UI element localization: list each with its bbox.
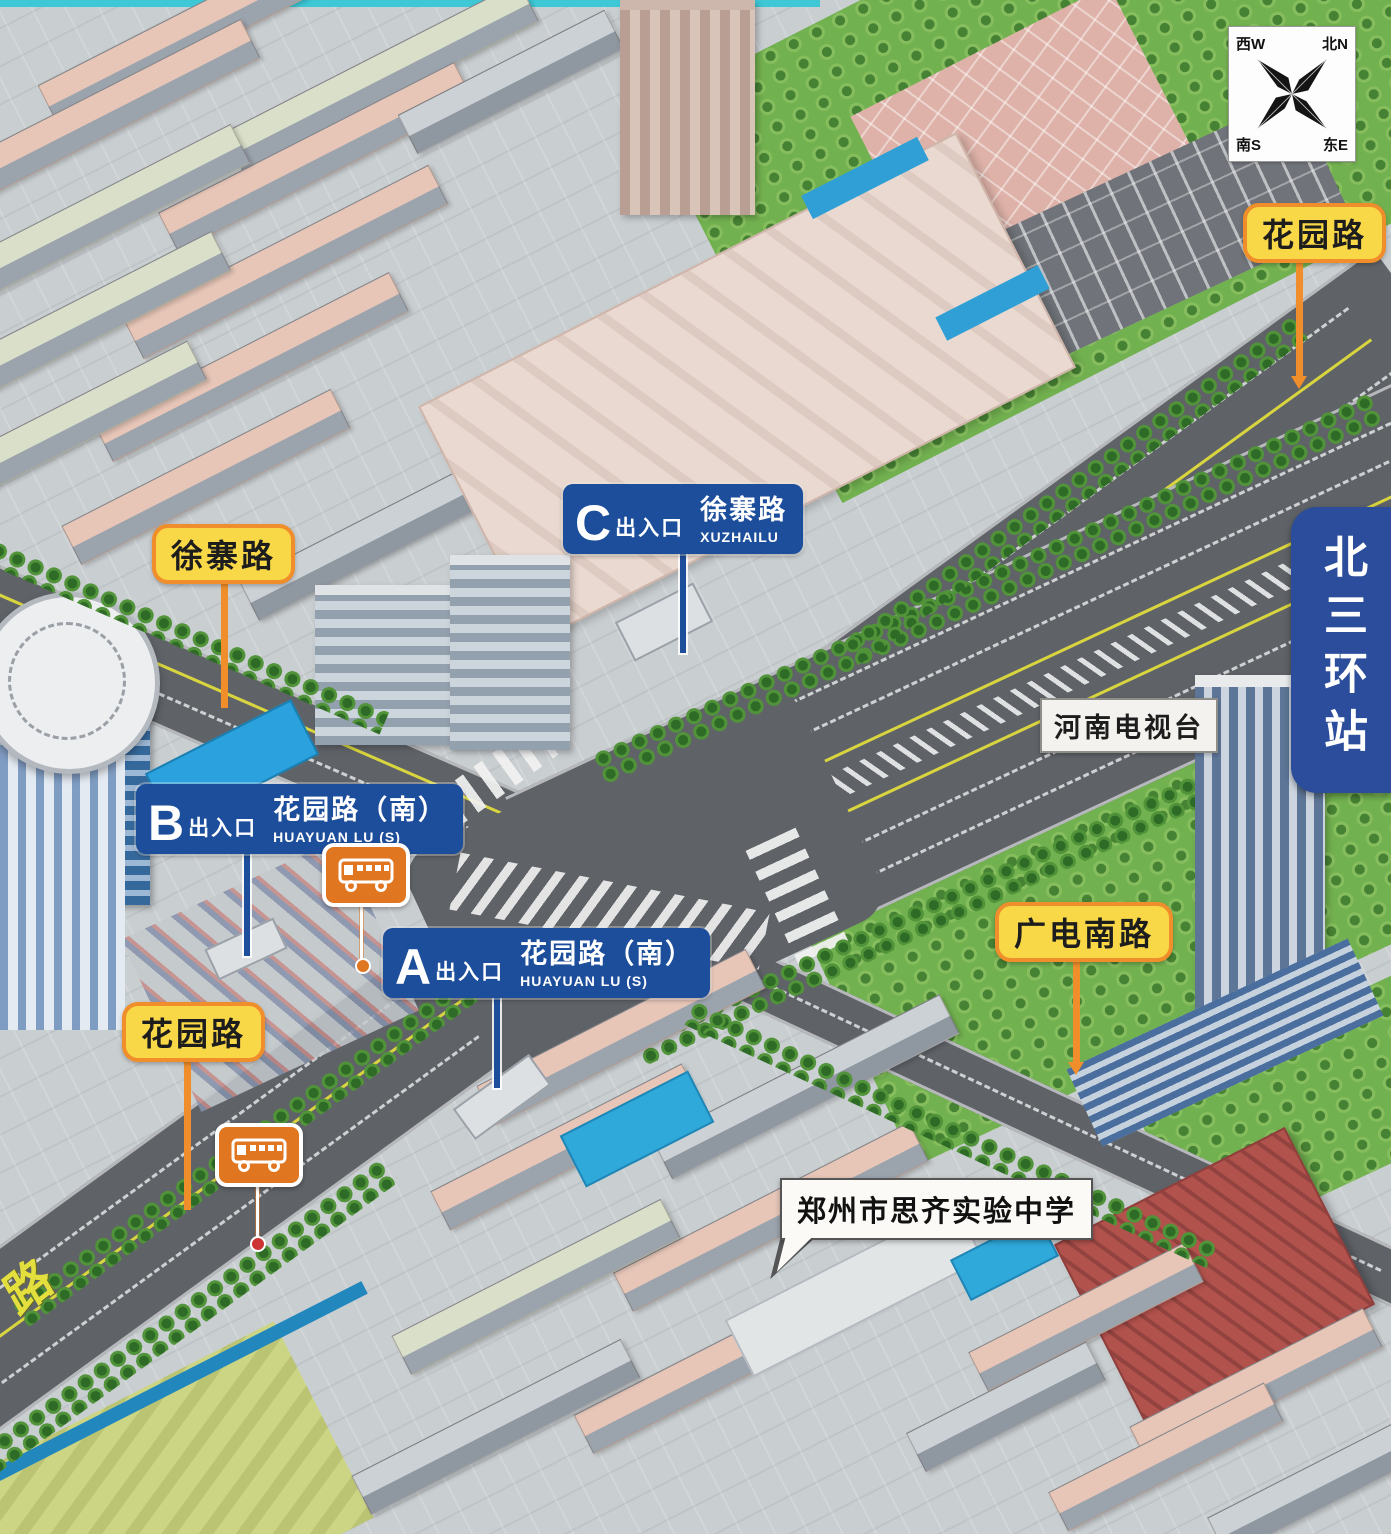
exit-road-name-en: HUAYUAN LU (S) xyxy=(520,973,694,989)
helipad-ring xyxy=(8,622,126,740)
pointer-arrow xyxy=(1068,1062,1084,1075)
exit-suffix: 出入口 xyxy=(184,812,257,846)
office-tower xyxy=(620,0,755,215)
bus-stop-dot xyxy=(355,958,371,974)
exit-c-pointer-line xyxy=(680,543,686,653)
compass-rose-icon xyxy=(1247,49,1337,139)
station-area-map: 路 C 出入口 徐寨路 XUZHAILU B 出入口 花园路（南） HUAYUA… xyxy=(0,0,1391,1534)
pointer-line xyxy=(184,1052,191,1210)
bus-stop-icon xyxy=(215,1123,303,1187)
office-building xyxy=(450,555,570,750)
bus-icon xyxy=(230,1138,288,1172)
exit-road-name-cn: 徐寨路 xyxy=(700,488,787,527)
bus-icon xyxy=(337,858,395,892)
exit-letter: A xyxy=(395,944,431,990)
pointer-arrow xyxy=(1291,376,1307,389)
station-name-banner: 北三环站 xyxy=(1291,507,1391,793)
exit-letter: C xyxy=(575,500,611,546)
exit-road-name-cn: 花园路（南） xyxy=(520,932,694,971)
exit-a-pointer-line xyxy=(494,992,500,1088)
bus-stop-dot xyxy=(250,1236,266,1252)
compass-box: 西W 北N 南S 东E xyxy=(1228,26,1356,162)
exit-road-name-en: XUZHAILU xyxy=(700,529,787,545)
road-label-huayuan-west: 花园路 xyxy=(122,1002,265,1062)
road-label-huayuan-north: 花园路 xyxy=(1243,203,1386,263)
exit-road-name-cn: 花园路（南） xyxy=(273,788,447,827)
pointer-line xyxy=(1296,250,1303,378)
henan-tv-label: 河南电视台 xyxy=(1040,698,1218,753)
pointer-line xyxy=(1073,952,1080,1064)
exit-letter: B xyxy=(148,800,184,846)
exit-suffix: 出入口 xyxy=(611,512,684,546)
exit-b-pointer-line xyxy=(244,848,250,956)
exit-c-label: C 出入口 徐寨路 XUZHAILU xyxy=(563,484,803,554)
exit-b-label: B 出入口 花园路（南） HUAYUAN LU (S) xyxy=(136,784,463,854)
pointer-line xyxy=(221,574,228,708)
bus-stop-icon xyxy=(322,843,410,907)
road-label-xuzhai: 徐寨路 xyxy=(152,524,295,584)
road-label-guangdian-south: 广电南路 xyxy=(995,902,1173,962)
exit-a-label: A 出入口 花园路（南） HUAYUAN LU (S) xyxy=(383,928,710,998)
cylindrical-tower xyxy=(0,745,125,1030)
school-callout: 郑州市思齐实验中学 xyxy=(780,1178,1093,1240)
exit-suffix: 出入口 xyxy=(431,956,504,990)
